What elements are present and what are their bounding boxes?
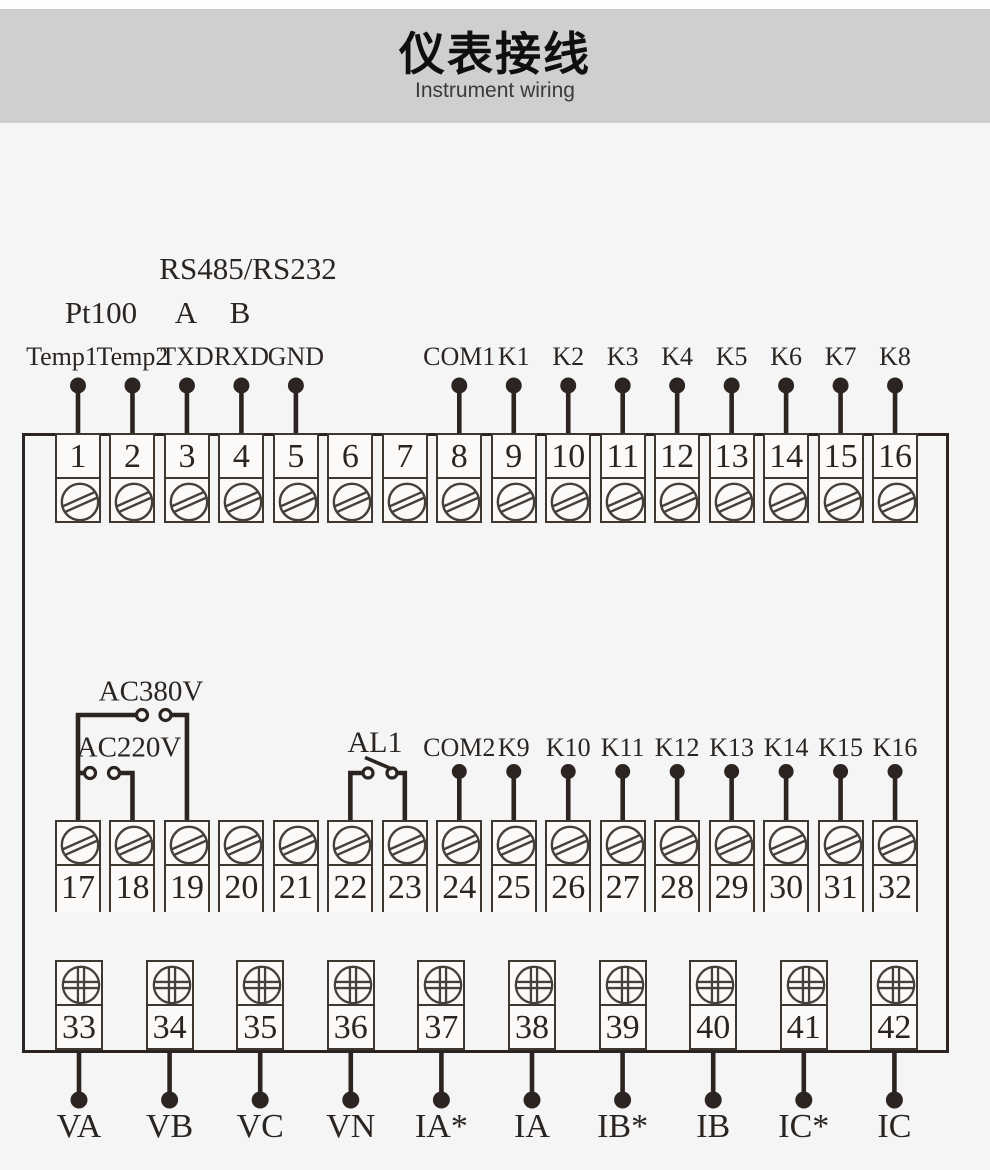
terminal-29-screw [709, 820, 755, 866]
terminal-22-number: 22 [327, 864, 373, 912]
terminal-40-screw [689, 960, 737, 1006]
terminal-38-screw [508, 960, 556, 1006]
terminal-5: 5 [273, 433, 319, 525]
terminal-number-text: 30 [765, 866, 807, 907]
terminal-4: 4 [218, 433, 264, 525]
switch-label-AC220V: AC220V [77, 732, 182, 765]
terminal-41-number: 41 [780, 1004, 828, 1050]
pin-dot-GND [288, 378, 304, 394]
terminal-10: 10 [545, 433, 591, 525]
slot-screw-icon [766, 480, 810, 524]
terminal-number-text: 34 [148, 1006, 192, 1047]
terminal-18-screw [109, 820, 155, 866]
pin-label-VA: VA [57, 1108, 102, 1146]
terminal-number-text: 18 [111, 866, 153, 907]
terminal-7-screw [382, 477, 428, 523]
terminal-21: 21 [273, 820, 319, 912]
terminal-2-screw [109, 477, 155, 523]
terminal-number-text: 27 [602, 866, 644, 907]
slot-screw-icon [494, 480, 538, 524]
terminal-20: 20 [218, 820, 264, 912]
terminal-7: 7 [382, 433, 428, 525]
terminal-25: 25 [491, 820, 537, 912]
terminal-14-number: 14 [763, 433, 809, 479]
terminal-29-number: 29 [709, 864, 755, 912]
terminal-31: 31 [818, 820, 864, 912]
terminal-26-number: 26 [545, 864, 591, 912]
terminal-27-screw [600, 820, 646, 866]
terminal-8-screw [436, 477, 482, 523]
label-terminal-b: B [230, 295, 251, 331]
terminal-28-screw [654, 820, 700, 866]
contact-AC380V-1 [137, 710, 148, 721]
terminal-number-text: 37 [419, 1006, 463, 1047]
slot-screw-icon [821, 480, 865, 524]
pin-label-K5: K5 [716, 342, 748, 372]
terminal-11-screw [600, 477, 646, 523]
contact-AC380V-2 [160, 710, 171, 721]
terminal-38-number: 38 [508, 1004, 556, 1050]
terminal-23-number: 23 [382, 864, 428, 912]
terminal-12-screw [654, 477, 700, 523]
terminal-6-screw [327, 477, 373, 523]
pin-dot-COM2 [452, 764, 467, 779]
terminal-1: 1 [55, 433, 101, 525]
terminal-number-text: 11 [602, 435, 644, 476]
pin-label-Temp1: Temp1 [26, 342, 98, 372]
phillips-screw-icon [873, 963, 919, 1007]
pin-dot-K4 [669, 378, 685, 394]
terminal-23: 23 [382, 820, 428, 912]
pin-dot-VA [71, 1092, 88, 1109]
slot-screw-icon [167, 480, 211, 524]
terminal-42-screw [870, 960, 918, 1006]
terminal-3-number: 3 [164, 433, 210, 479]
terminal-3: 3 [164, 433, 210, 525]
terminal-number-text: 32 [874, 866, 916, 907]
terminal-number-text: 15 [820, 435, 862, 476]
pin-label-TXD: TXD [160, 342, 213, 372]
terminal-2: 2 [109, 433, 155, 525]
terminal-40-number: 40 [689, 1004, 737, 1050]
pin-label-K1: K1 [498, 342, 530, 372]
pin-label-VC: VC [237, 1108, 284, 1146]
pin-label-IB: IB [696, 1108, 730, 1146]
terminal-15: 15 [818, 433, 864, 525]
terminal-37-number: 37 [417, 1004, 465, 1050]
label-rs485-rs232: RS485/RS232 [159, 251, 336, 287]
terminal-23-screw [382, 820, 428, 866]
terminal-15-screw [818, 477, 864, 523]
slot-screw-icon [385, 823, 429, 867]
terminal-19-number: 19 [164, 864, 210, 912]
terminal-number-text: 7 [384, 435, 426, 476]
terminal-42: 42 [870, 960, 918, 1052]
terminal-12: 12 [654, 433, 700, 525]
pin-dot-K2 [560, 378, 576, 394]
terminal-30: 30 [763, 820, 809, 912]
slot-screw-icon [712, 823, 756, 867]
pin-label-IA: IA [514, 1108, 550, 1146]
terminal-11: 11 [600, 433, 646, 525]
terminal-13-screw [709, 477, 755, 523]
terminal-32: 32 [872, 820, 918, 912]
pin-dot-RXD [233, 378, 249, 394]
contact-AC220V-2 [109, 768, 120, 779]
terminal-4-screw [218, 477, 264, 523]
phillips-screw-icon [330, 963, 376, 1007]
terminal-26: 26 [545, 820, 591, 912]
terminal-7-number: 7 [382, 433, 428, 479]
pin-label-K13: K13 [709, 733, 754, 763]
terminal-number-text: 42 [872, 1006, 916, 1047]
label-terminal-a: A [175, 295, 197, 331]
slot-screw-icon [330, 823, 374, 867]
terminal-35: 35 [236, 960, 284, 1052]
terminal-5-number: 5 [273, 433, 319, 479]
pin-dot-IC* [795, 1092, 812, 1109]
terminal-17-number: 17 [55, 864, 101, 912]
terminal-20-screw [218, 820, 264, 866]
slot-screw-icon [603, 480, 647, 524]
terminal-9: 9 [491, 433, 537, 525]
pin-dot-K9 [506, 764, 521, 779]
slot-screw-icon [657, 823, 701, 867]
terminal-39-number: 39 [599, 1004, 647, 1050]
terminal-number-text: 10 [547, 435, 589, 476]
terminal-number-text: 19 [166, 866, 208, 907]
phillips-screw-icon [692, 963, 738, 1007]
pin-dot-K5 [724, 378, 740, 394]
terminal-10-screw [545, 477, 591, 523]
contact-AC220V-1 [85, 768, 96, 779]
terminal-number-text: 29 [711, 866, 753, 907]
pin-label-K15: K15 [818, 733, 863, 763]
slot-screw-icon [221, 823, 265, 867]
terminal-number-text: 36 [329, 1006, 373, 1047]
phillips-screw-icon [149, 963, 195, 1007]
terminal-41-screw [780, 960, 828, 1006]
pin-label-K8: K8 [879, 342, 911, 372]
terminal-20-number: 20 [218, 864, 264, 912]
terminal-number-text: 35 [238, 1006, 282, 1047]
switch-label-AL1: AL1 [348, 726, 403, 760]
terminal-1-number: 1 [55, 433, 101, 479]
terminal-number-text: 3 [166, 435, 208, 476]
slot-screw-icon [548, 480, 592, 524]
pin-label-K16: K16 [873, 733, 918, 763]
terminal-number-text: 5 [275, 435, 317, 476]
switch-label-AC380V: AC380V [99, 676, 204, 709]
slot-screw-icon [385, 480, 429, 524]
slot-screw-icon [439, 823, 483, 867]
slot-screw-icon [58, 480, 102, 524]
terminal-35-screw [236, 960, 284, 1006]
pin-dot-Temp2 [124, 378, 140, 394]
pin-label-K2: K2 [552, 342, 584, 372]
terminal-number-text: 39 [601, 1006, 645, 1047]
terminal-number-text: 21 [275, 866, 317, 907]
terminal-6-number: 6 [327, 433, 373, 479]
pin-dot-COM1 [451, 378, 467, 394]
contact-AL1-1 [363, 768, 373, 778]
pin-dot-K1 [506, 378, 522, 394]
terminal-37-screw [417, 960, 465, 1006]
terminal-number-text: 28 [656, 866, 698, 907]
terminal-28-number: 28 [654, 864, 700, 912]
terminal-number-text: 6 [329, 435, 371, 476]
terminal-21-number: 21 [273, 864, 319, 912]
pin-label-VN: VN [326, 1108, 375, 1146]
terminal-number-text: 24 [438, 866, 480, 907]
terminal-15-number: 15 [818, 433, 864, 479]
slot-screw-icon [276, 823, 320, 867]
slot-screw-icon [875, 823, 919, 867]
pin-dot-VB [161, 1092, 178, 1109]
pin-label-K9: K9 [498, 733, 530, 763]
pin-label-IC*: IC* [778, 1108, 829, 1146]
terminal-16-number: 16 [872, 433, 918, 479]
terminal-27-number: 27 [600, 864, 646, 912]
terminal-number-text: 2 [111, 435, 153, 476]
terminal-number-text: 8 [438, 435, 480, 476]
terminal-34-screw [146, 960, 194, 1006]
terminal-22-screw [327, 820, 373, 866]
terminal-number-text: 17 [57, 866, 99, 907]
pin-label-K12: K12 [655, 733, 700, 763]
terminal-42-number: 42 [870, 1004, 918, 1050]
terminal-36: 36 [327, 960, 375, 1052]
terminal-30-number: 30 [763, 864, 809, 912]
pin-dot-VN [342, 1092, 359, 1109]
terminal-number-text: 38 [510, 1006, 554, 1047]
terminal-3-screw [164, 477, 210, 523]
wire-AL1-right [397, 773, 405, 823]
terminal-8-number: 8 [436, 433, 482, 479]
slot-screw-icon [439, 480, 483, 524]
contact-AL1-2 [387, 768, 397, 778]
terminal-1-screw [55, 477, 101, 523]
wiring-diagram: RS485/RS232 Pt100 A B 123456789101112131… [0, 0, 990, 1170]
pin-label-K11: K11 [601, 733, 645, 763]
pin-dot-K8 [887, 378, 903, 394]
pin-dot-IB [705, 1092, 722, 1109]
terminal-29: 29 [709, 820, 755, 912]
terminal-number-text: 31 [820, 866, 862, 907]
pin-label-VB: VB [146, 1108, 193, 1146]
phillips-screw-icon [783, 963, 829, 1007]
pin-label-COM1: COM1 [423, 342, 495, 372]
pin-dot-K12 [670, 764, 685, 779]
slot-screw-icon [330, 480, 374, 524]
pin-label-K14: K14 [764, 733, 809, 763]
terminal-5-screw [273, 477, 319, 523]
pin-dot-K3 [615, 378, 631, 394]
pin-dot-TXD [179, 378, 195, 394]
pin-label-IA*: IA* [415, 1108, 468, 1146]
pin-dot-K11 [615, 764, 630, 779]
phillips-screw-icon [58, 963, 104, 1007]
terminal-24-number: 24 [436, 864, 482, 912]
slot-screw-icon [494, 823, 538, 867]
pin-dot-VC [252, 1092, 269, 1109]
pin-dot-K15 [833, 764, 848, 779]
terminal-26-screw [545, 820, 591, 866]
slot-screw-icon [112, 480, 156, 524]
terminal-38: 38 [508, 960, 556, 1052]
pin-dot-K6 [778, 378, 794, 394]
slot-screw-icon [58, 823, 102, 867]
phillips-screw-icon [602, 963, 648, 1007]
terminal-34: 34 [146, 960, 194, 1052]
pin-dot-IC [886, 1092, 903, 1109]
terminal-10-number: 10 [545, 433, 591, 479]
terminal-28: 28 [654, 820, 700, 912]
terminal-33: 33 [55, 960, 103, 1052]
terminal-9-number: 9 [491, 433, 537, 479]
terminal-number-text: 1 [57, 435, 99, 476]
slot-screw-icon [766, 823, 810, 867]
pin-dot-K14 [779, 764, 794, 779]
terminal-number-text: 9 [493, 435, 535, 476]
terminal-number-text: 26 [547, 866, 589, 907]
terminal-35-number: 35 [236, 1004, 284, 1050]
terminal-19-screw [164, 820, 210, 866]
pin-dot-K7 [833, 378, 849, 394]
slot-screw-icon [657, 480, 701, 524]
pin-dot-K16 [888, 764, 903, 779]
terminal-27: 27 [600, 820, 646, 912]
slot-screw-icon [276, 480, 320, 524]
slot-screw-icon [221, 480, 265, 524]
terminal-36-screw [327, 960, 375, 1006]
wire-AC220V-right [120, 773, 133, 823]
terminal-17: 17 [55, 820, 101, 912]
pin-label-K7: K7 [825, 342, 857, 372]
terminal-30-screw [763, 820, 809, 866]
terminal-31-number: 31 [818, 864, 864, 912]
terminal-number-text: 40 [691, 1006, 735, 1047]
slot-screw-icon [603, 823, 647, 867]
terminal-number-text: 41 [782, 1006, 826, 1047]
phillips-screw-icon [420, 963, 466, 1007]
terminal-33-screw [55, 960, 103, 1006]
terminal-number-text: 33 [57, 1006, 101, 1047]
pin-label-COM2: COM2 [423, 733, 495, 763]
terminal-16: 16 [872, 433, 918, 525]
terminal-21-screw [273, 820, 319, 866]
terminal-14: 14 [763, 433, 809, 525]
label-pt100: Pt100 [65, 295, 137, 331]
terminal-13: 13 [709, 433, 755, 525]
terminal-36-number: 36 [327, 1004, 375, 1050]
terminal-number-text: 14 [765, 435, 807, 476]
terminal-13-number: 13 [709, 433, 755, 479]
terminal-number-text: 4 [220, 435, 262, 476]
terminal-24-screw [436, 820, 482, 866]
terminal-39: 39 [599, 960, 647, 1052]
terminal-number-text: 16 [874, 435, 916, 476]
pin-label-K6: K6 [770, 342, 802, 372]
terminal-17-screw [55, 820, 101, 866]
terminal-33-number: 33 [55, 1004, 103, 1050]
terminal-12-number: 12 [654, 433, 700, 479]
wire-AL1-left [350, 773, 363, 823]
pin-label-GND: GND [268, 342, 324, 372]
terminal-6: 6 [327, 433, 373, 525]
pin-label-IC: IC [877, 1108, 911, 1146]
terminal-8: 8 [436, 433, 482, 525]
terminal-39-screw [599, 960, 647, 1006]
terminal-41: 41 [780, 960, 828, 1052]
terminal-18: 18 [109, 820, 155, 912]
terminal-40: 40 [689, 960, 737, 1052]
terminal-24: 24 [436, 820, 482, 912]
terminal-number-text: 13 [711, 435, 753, 476]
terminal-37: 37 [417, 960, 465, 1052]
terminal-16-screw [872, 477, 918, 523]
pin-label-Temp2: Temp2 [97, 342, 169, 372]
terminal-9-screw [491, 477, 537, 523]
pin-dot-IB* [614, 1092, 631, 1109]
terminal-4-number: 4 [218, 433, 264, 479]
slot-screw-icon [821, 823, 865, 867]
terminal-2-number: 2 [109, 433, 155, 479]
terminal-number-text: 25 [493, 866, 535, 907]
pin-dot-K13 [724, 764, 739, 779]
slot-screw-icon [548, 823, 592, 867]
pin-label-IB*: IB* [597, 1108, 648, 1146]
terminal-number-text: 23 [384, 866, 426, 907]
slot-screw-icon [112, 823, 156, 867]
terminal-25-number: 25 [491, 864, 537, 912]
pin-label-K3: K3 [607, 342, 639, 372]
terminal-11-number: 11 [600, 433, 646, 479]
pin-dot-IA [524, 1092, 541, 1109]
slot-screw-icon [712, 480, 756, 524]
terminal-34-number: 34 [146, 1004, 194, 1050]
pin-dot-K10 [561, 764, 576, 779]
terminal-number-text: 22 [329, 866, 371, 907]
terminal-31-screw [818, 820, 864, 866]
terminal-22: 22 [327, 820, 373, 912]
slot-screw-icon [167, 823, 211, 867]
pin-dot-Temp1 [70, 378, 86, 394]
slot-screw-icon [875, 480, 919, 524]
phillips-screw-icon [239, 963, 285, 1007]
terminal-number-text: 20 [220, 866, 262, 907]
pin-label-K4: K4 [661, 342, 693, 372]
terminal-25-screw [491, 820, 537, 866]
terminal-32-screw [872, 820, 918, 866]
terminal-19: 19 [164, 820, 210, 912]
terminal-number-text: 12 [656, 435, 698, 476]
pin-label-K10: K10 [546, 733, 591, 763]
terminal-18-number: 18 [109, 864, 155, 912]
phillips-screw-icon [511, 963, 557, 1007]
pin-label-RXD: RXD [214, 342, 269, 372]
terminal-32-number: 32 [872, 864, 918, 912]
pin-dot-IA* [433, 1092, 450, 1109]
terminal-14-screw [763, 477, 809, 523]
